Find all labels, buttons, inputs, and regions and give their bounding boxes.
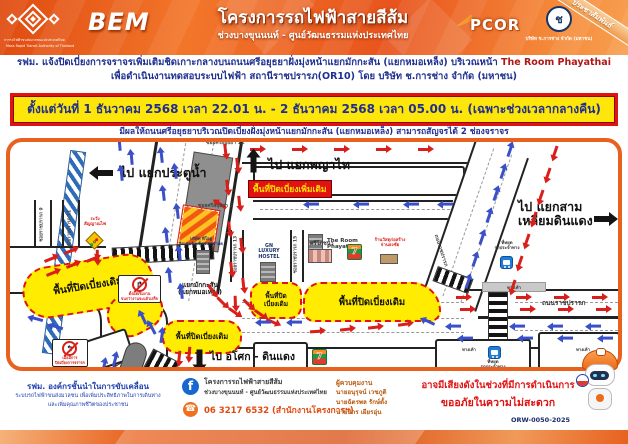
traffic-arrow-red <box>516 296 527 299</box>
traffic-diversion-map: พื้นที่ปิดเบี่ยงเดิม พื้นที่ปิดเบี่ยงเดิ… <box>6 138 622 371</box>
no-right-turn-caption: ตั้งแต่เริ่มงานจนกว่างานจะแล้วเสร็จ <box>121 292 158 301</box>
closure-zone-label: พื้นที่ปิดเบี่ยงเดิม <box>52 273 123 299</box>
mrta-tagline-2: ระบบรถไฟฟ้าขนส่งมวลชน เพื่อเพิ่มประสิทธิ… <box>6 392 170 400</box>
traffic-arrow-blue <box>562 337 573 340</box>
lane-divider <box>515 330 622 331</box>
traffic-arrow-red <box>398 322 409 326</box>
mascot-chest-light <box>596 394 604 402</box>
traffic-arrow-blue <box>450 325 461 328</box>
bus-stop-label: ที่หยุดรถประจำทาง <box>472 361 514 371</box>
bus-stop-icon <box>488 346 501 359</box>
ck-logo-icon: ช <box>546 6 572 32</box>
dir-to-pratunam: ไป แยกประตูน้ำ <box>120 166 207 180</box>
traffic-arrow-blue <box>462 337 473 340</box>
pcor-logo: PCOR <box>470 16 520 34</box>
closure-zone-label: พื้นที่ปิดเบี่ยงเดิม <box>264 293 288 309</box>
supervisor-3: นายนิกร เผียรอุ่น <box>336 407 381 417</box>
traffic-arrow-blue <box>165 232 169 243</box>
material-shop-building <box>380 254 398 264</box>
traffic-arrow-red <box>460 308 471 311</box>
mascot-visor <box>590 371 609 380</box>
traffic-arrow-blue <box>260 321 271 324</box>
phone-icon: ☎ <box>183 402 198 417</box>
seven-eleven-icon: 7 <box>347 244 362 260</box>
facebook-icon: f <box>182 378 199 395</box>
apology-notice: ขออภัยในความไม่สะดวก <box>428 394 568 411</box>
soi-edge <box>34 200 36 246</box>
no-right-turn-icon: ↱ <box>132 277 147 292</box>
direction-arrow <box>197 350 203 365</box>
effect-note: มีผลให้ถนนศรีอยุธยาบริเวณปิดเบี่ยงฝั่งมุ… <box>0 124 628 138</box>
company-label: บริษัท ทีโอยูอินเตอร์เนชั่นแนล จำกัด <box>178 237 224 246</box>
mascot-face <box>585 364 615 386</box>
traffic-arrow-red <box>376 148 387 151</box>
footer: รฟม. องค์กรชั้นนำในการขับเคลื่อน ระบบรถไ… <box>0 372 628 430</box>
road-edge <box>253 218 455 220</box>
direction-arrow <box>98 170 113 176</box>
soi-label: ซอยศรีอยุธยา 2 <box>198 204 233 210</box>
traffic-arrow-red <box>178 351 182 362</box>
material-shop-label: ร้านวัสดุก่อสร้างจ่านธงชัย <box>368 239 412 249</box>
direction-arrow <box>594 216 609 222</box>
traffic-arrow-blue <box>118 140 122 151</box>
noise-notice: อาจมีเสียงดังในช่วงที่มีการดำเนินการ <box>418 378 578 393</box>
bus-stop-icon <box>500 256 513 269</box>
traffic-arrow-red <box>234 296 237 307</box>
traffic-arrow-red <box>524 234 530 245</box>
no-left-turn-icon: ↰ <box>62 341 77 356</box>
no-left-turn-caption: เมื่อมีการปิดเบี่ยงการจราจร <box>55 356 85 365</box>
traffic-arrow-red <box>44 256 55 263</box>
soi-label: ซอยราชปรารภ 9 <box>39 197 44 253</box>
closure-zone-label: พื้นที่ปิดเบี่ยงเดิม <box>339 295 405 310</box>
closure-zone-label: พื้นที่ปิดเบี่ยงเดิม <box>176 331 228 343</box>
traffic-arrow-red <box>520 308 531 311</box>
no-right-turn-sign: ↱ ตั้งแต่เริ่มงานจนกว่างานจะแล้วเสร็จ <box>118 275 161 303</box>
document-code: ORW-0050-2025 <box>470 416 570 424</box>
mrta-diamond-left <box>6 13 17 24</box>
signal-warning-label: ระวังสัญญาณไฟ <box>74 218 116 228</box>
traffic-arrow-red <box>292 148 303 151</box>
traffic-arrow-blue <box>308 203 319 206</box>
traffic-arrow-red <box>418 148 429 151</box>
traffic-arrow-red <box>517 256 523 267</box>
traffic-arrow-blue <box>291 321 302 324</box>
mrta-tagline-3: และเพิ่มคุณภาพชีวิตของประชาชน <box>6 401 170 409</box>
junction-label: แยกมักกะสัน(แยกหมอเหล็ง) <box>160 282 240 297</box>
pr-ribbon: ประชาสัมพันธ์ <box>529 0 628 55</box>
traffic-arrow-blue <box>130 154 134 165</box>
traffic-arrow-blue <box>590 325 601 328</box>
announcement-text: รฟม. แจ้งปิดเบี่ยงการจราจรเพิ่มเติมชิดเก… <box>0 56 628 85</box>
traffic-arrow-blue <box>168 272 172 283</box>
soi-edge <box>50 200 52 246</box>
traffic-arrow-blue <box>514 325 525 328</box>
lane-divider <box>242 332 464 333</box>
bottom-orange-strip <box>0 430 628 444</box>
traffic-arrow-blue <box>160 152 164 163</box>
soi-label: ซอยราชปรารภ 15 <box>293 227 298 283</box>
project-title: โครงการรถไฟฟ้าสายสีส้ม <box>178 4 448 31</box>
traffic-arrow-red <box>96 250 99 261</box>
traffic-arrow-red <box>310 330 321 333</box>
traffic-arrow-red <box>596 308 607 311</box>
dir-to-phayathai: ไป แยกพญาไท <box>268 158 350 172</box>
restaurant-building <box>308 249 332 263</box>
supervisor-2: นายฉัตรพล รักษ์ตั้ง <box>336 397 387 407</box>
traffic-arrow-blue <box>552 325 563 328</box>
facebook-page-sub: ช่วงบางขุนนนท์ - ศูนย์วัฒนธรรมแห่งประเทศ… <box>204 387 327 397</box>
traffic-arrow-blue <box>442 203 453 206</box>
traffic-arrow-red <box>238 196 242 207</box>
traffic-arrow-red <box>368 325 379 329</box>
signal-yellow-dot <box>93 240 96 243</box>
traffic-arrow-red <box>242 278 246 289</box>
traffic-arrow-red <box>188 347 192 358</box>
company-building <box>196 250 210 274</box>
sidewalk-label: ทางเท้า <box>452 346 486 353</box>
traffic-arrow-red <box>340 327 351 331</box>
traffic-arrow-red <box>552 146 558 157</box>
traffic-arrow-blue <box>358 203 369 206</box>
mrta-name-en: Mass Rapid Transit Authority of Thailand <box>6 44 74 48</box>
soi-edge <box>290 230 292 282</box>
traffic-arrow-red <box>558 308 569 311</box>
gn-hostel-building <box>260 262 276 282</box>
traffic-arrow-red <box>456 296 467 299</box>
traffic-arrow-blue <box>602 337 613 340</box>
mrta-diamond-right <box>48 13 59 24</box>
crosswalk <box>488 292 508 346</box>
ck-company-name: บริษัท ช.การช่าง จำกัด (มหาชน) <box>506 36 612 43</box>
poster: การรถไฟฟ้าขนส่งมวลชนแห่งประเทศไทย Mass R… <box>0 0 628 444</box>
traffic-arrow-red <box>334 148 345 151</box>
announcement-line1: รฟม. แจ้งปิดเบี่ยงการจราจรเพิ่มเติมชิดเก… <box>17 57 498 68</box>
mascot-body <box>588 388 612 410</box>
seven-eleven-icon: 7 <box>312 349 327 365</box>
mascot-robot-icon <box>578 348 624 438</box>
traffic-arrow-blue <box>176 208 180 219</box>
road-label: ถนนราชปรารภ <box>542 300 585 307</box>
announcement-highlight: The Room Phayathai <box>501 57 611 68</box>
direction-arrow <box>251 158 257 173</box>
lane-divider <box>260 209 450 210</box>
mrta-name-th: การรถไฟฟ้าขนส่งมวลชนแห่งประเทศไทย <box>4 38 65 42</box>
road-edge <box>136 138 158 263</box>
closure-period-banner: ตั้งแต่วันที่ 1 ธันวาคม 2568 เวลา 22.01 … <box>10 93 618 126</box>
traffic-arrow-red <box>217 296 227 306</box>
traffic-arrow-blue <box>408 203 419 206</box>
phone-number: 06 3217 6532 (สำนักงานโครงการฯ) <box>204 403 354 417</box>
traffic-arrow-blue <box>162 190 166 201</box>
traffic-arrow-blue <box>522 337 533 340</box>
traffic-arrow-red <box>228 222 232 233</box>
new-closure-callout: พื้นที่ปิดเบี่ยงเพิ่มเติม <box>248 180 332 198</box>
announcement-line2: เพื่อดำเนินงานทดสอบระบบไฟฟ้า สถานีราชปรา… <box>111 71 517 82</box>
soi-edge <box>62 200 64 246</box>
gn-hostel-label: GNLUXURYHOSTEL <box>256 244 282 260</box>
supervisor-1: นายอนุรุจน์ เวชภูติ <box>336 387 387 397</box>
signal-green-dot <box>91 243 94 246</box>
traffic-arrow-red <box>592 296 603 299</box>
no-left-turn-sign: ↰ เมื่อมีการปิดเบี่ยงการจราจร <box>52 339 88 367</box>
traffic-arrow-red <box>554 296 565 299</box>
restaurant-label: ศรีโภชนา <box>310 241 334 247</box>
soi-edge <box>302 230 304 282</box>
header-banner: การรถไฟฟ้าขนส่งมวลชนแห่งประเทศไทย Mass R… <box>0 0 628 55</box>
bem-logo: BEM <box>88 8 150 36</box>
mascot-badge <box>576 374 589 387</box>
dir-to-asok: ไป อโศก - ดินแดง <box>210 352 295 364</box>
project-subtitle: ช่วงบางขุนนนท์ - ศูนย์วัฒนธรรมแห่งประเทศ… <box>168 28 458 42</box>
traffic-arrow-red <box>545 168 551 179</box>
